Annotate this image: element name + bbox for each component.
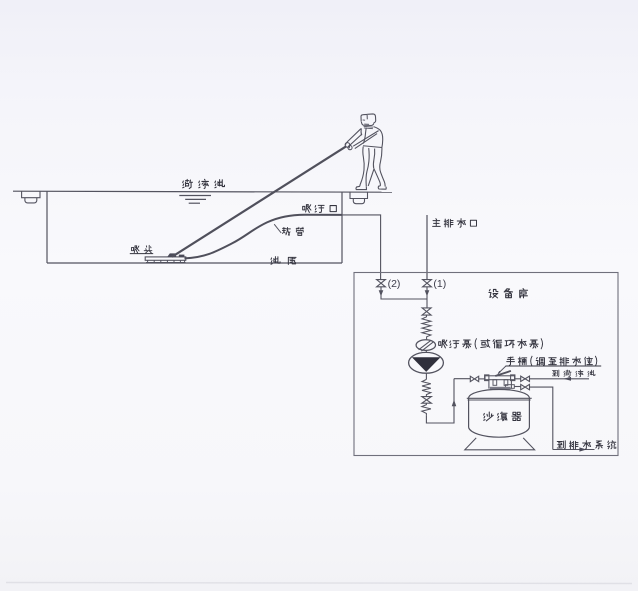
svg-text:(2): (2) bbox=[388, 278, 401, 290]
svg-text:(1): (1) bbox=[433, 278, 446, 290]
